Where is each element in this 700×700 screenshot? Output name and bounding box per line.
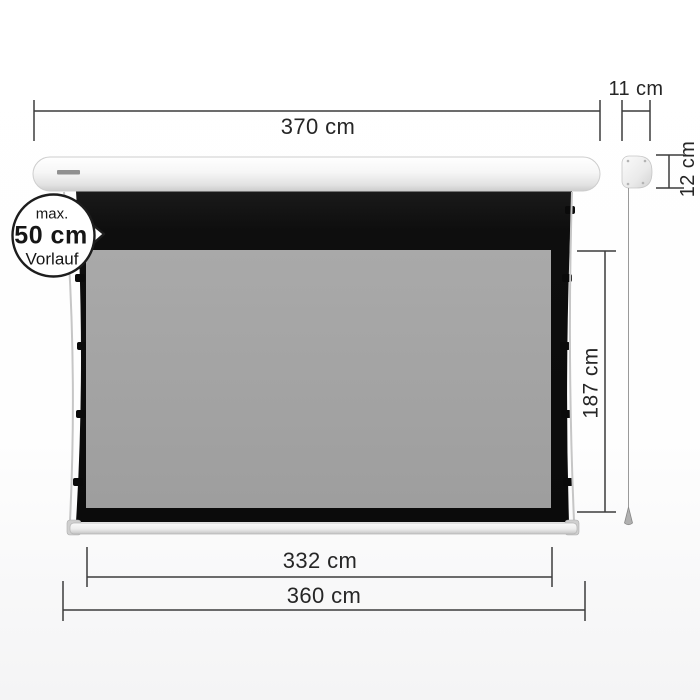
label-housing-side-width: 11 cm <box>609 79 664 99</box>
label-viewing-height: 187 cm <box>581 347 602 418</box>
housing-side-view <box>622 156 652 188</box>
tension-cord-right <box>570 192 574 521</box>
callout-line-50cm: 50 cm <box>14 224 87 249</box>
screen-housing <box>33 157 600 191</box>
brand-logo-mark <box>57 170 80 175</box>
label-bottom-bar-width: 360 cm <box>287 585 362 607</box>
label-viewing-width: 332 cm <box>283 550 358 572</box>
label-housing-side-height: 12 cm <box>678 141 698 197</box>
label-total-width: 370 cm <box>281 116 356 138</box>
viewing-surface <box>86 250 551 508</box>
pull-cord-weight <box>625 507 633 525</box>
callout-line-vorlauf: Vorlauf <box>26 251 79 268</box>
bottom-bar <box>70 523 577 534</box>
callout-line-max: max. <box>36 207 69 222</box>
dim-housing-side-width <box>622 100 650 141</box>
screen-dimension-diagram: 370 cm 11 cm 12 cm 187 cm 332 cm 360 cm … <box>0 0 700 700</box>
